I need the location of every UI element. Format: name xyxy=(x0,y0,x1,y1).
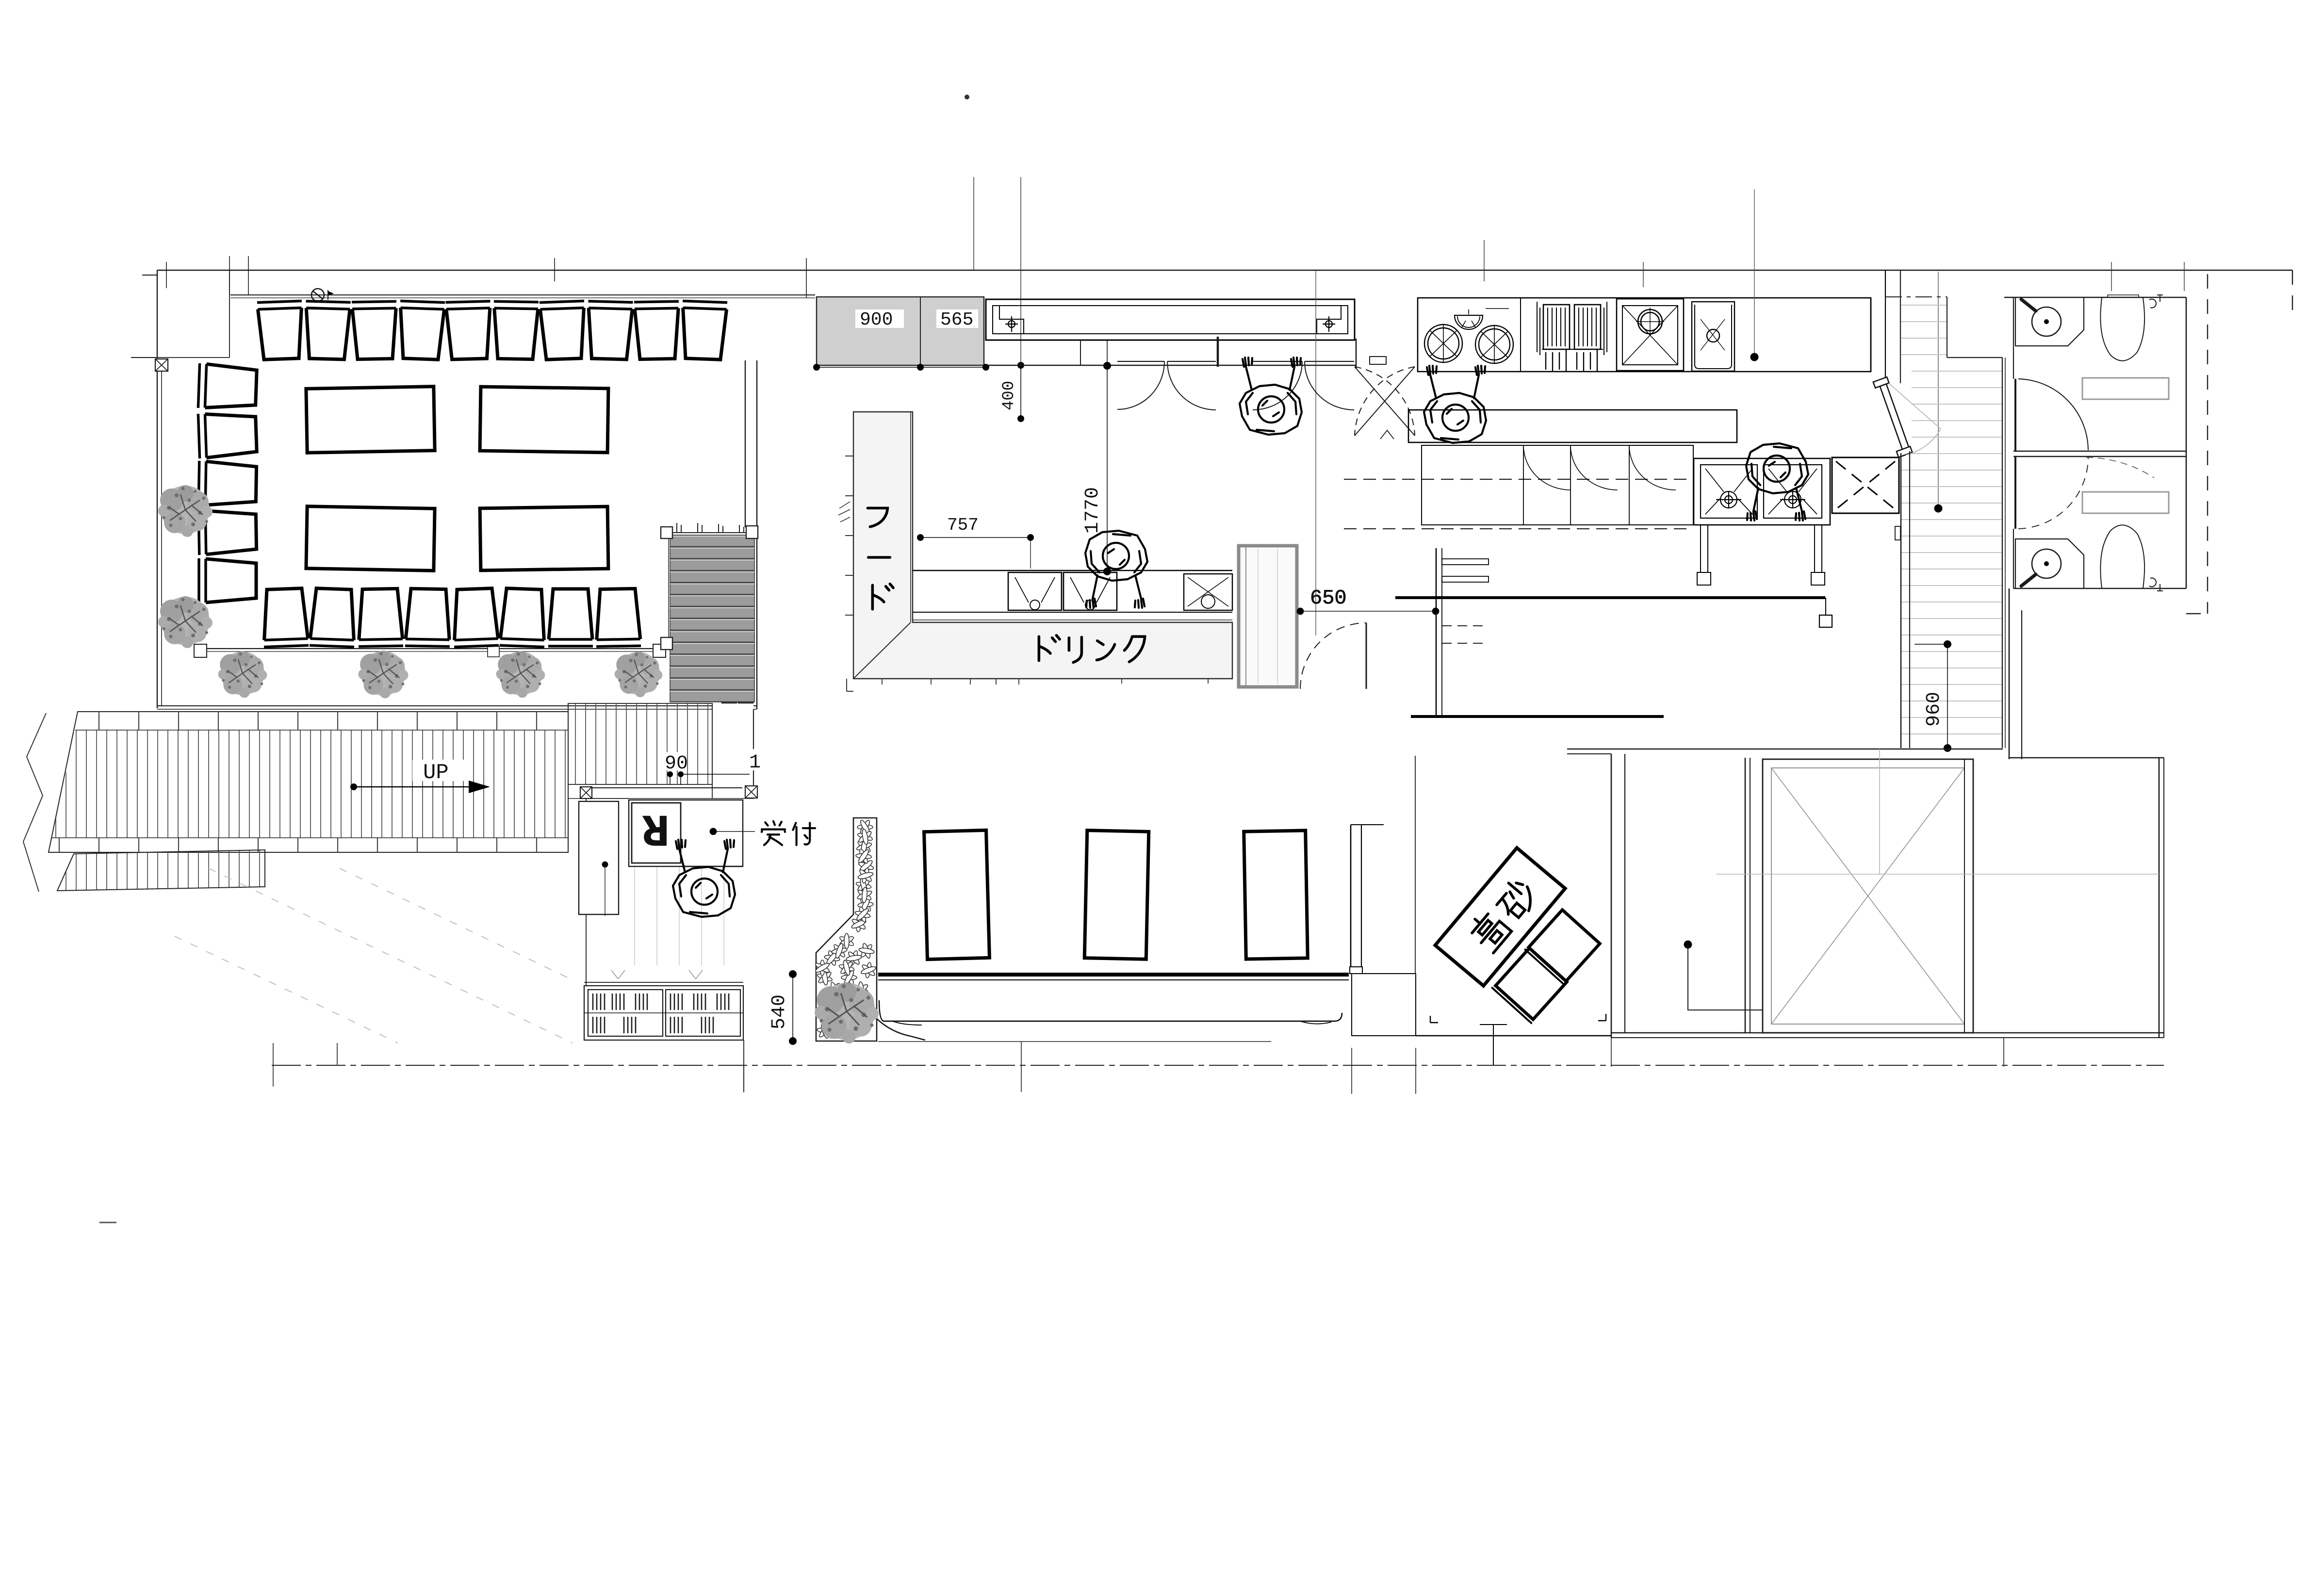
svg-text:1: 1 xyxy=(749,752,761,774)
svg-text:757: 757 xyxy=(947,515,979,535)
svg-text:565: 565 xyxy=(940,309,973,330)
svg-text:400: 400 xyxy=(1000,381,1018,410)
svg-text:650: 650 xyxy=(1310,586,1347,610)
svg-text:960: 960 xyxy=(1923,692,1945,727)
svg-text:540: 540 xyxy=(769,994,790,1029)
svg-text:1770: 1770 xyxy=(1082,487,1104,534)
svg-text:R: R xyxy=(642,803,670,854)
svg-text:90: 90 xyxy=(665,753,688,775)
svg-text:UP: UP xyxy=(423,761,449,785)
svg-text:900: 900 xyxy=(860,309,893,330)
